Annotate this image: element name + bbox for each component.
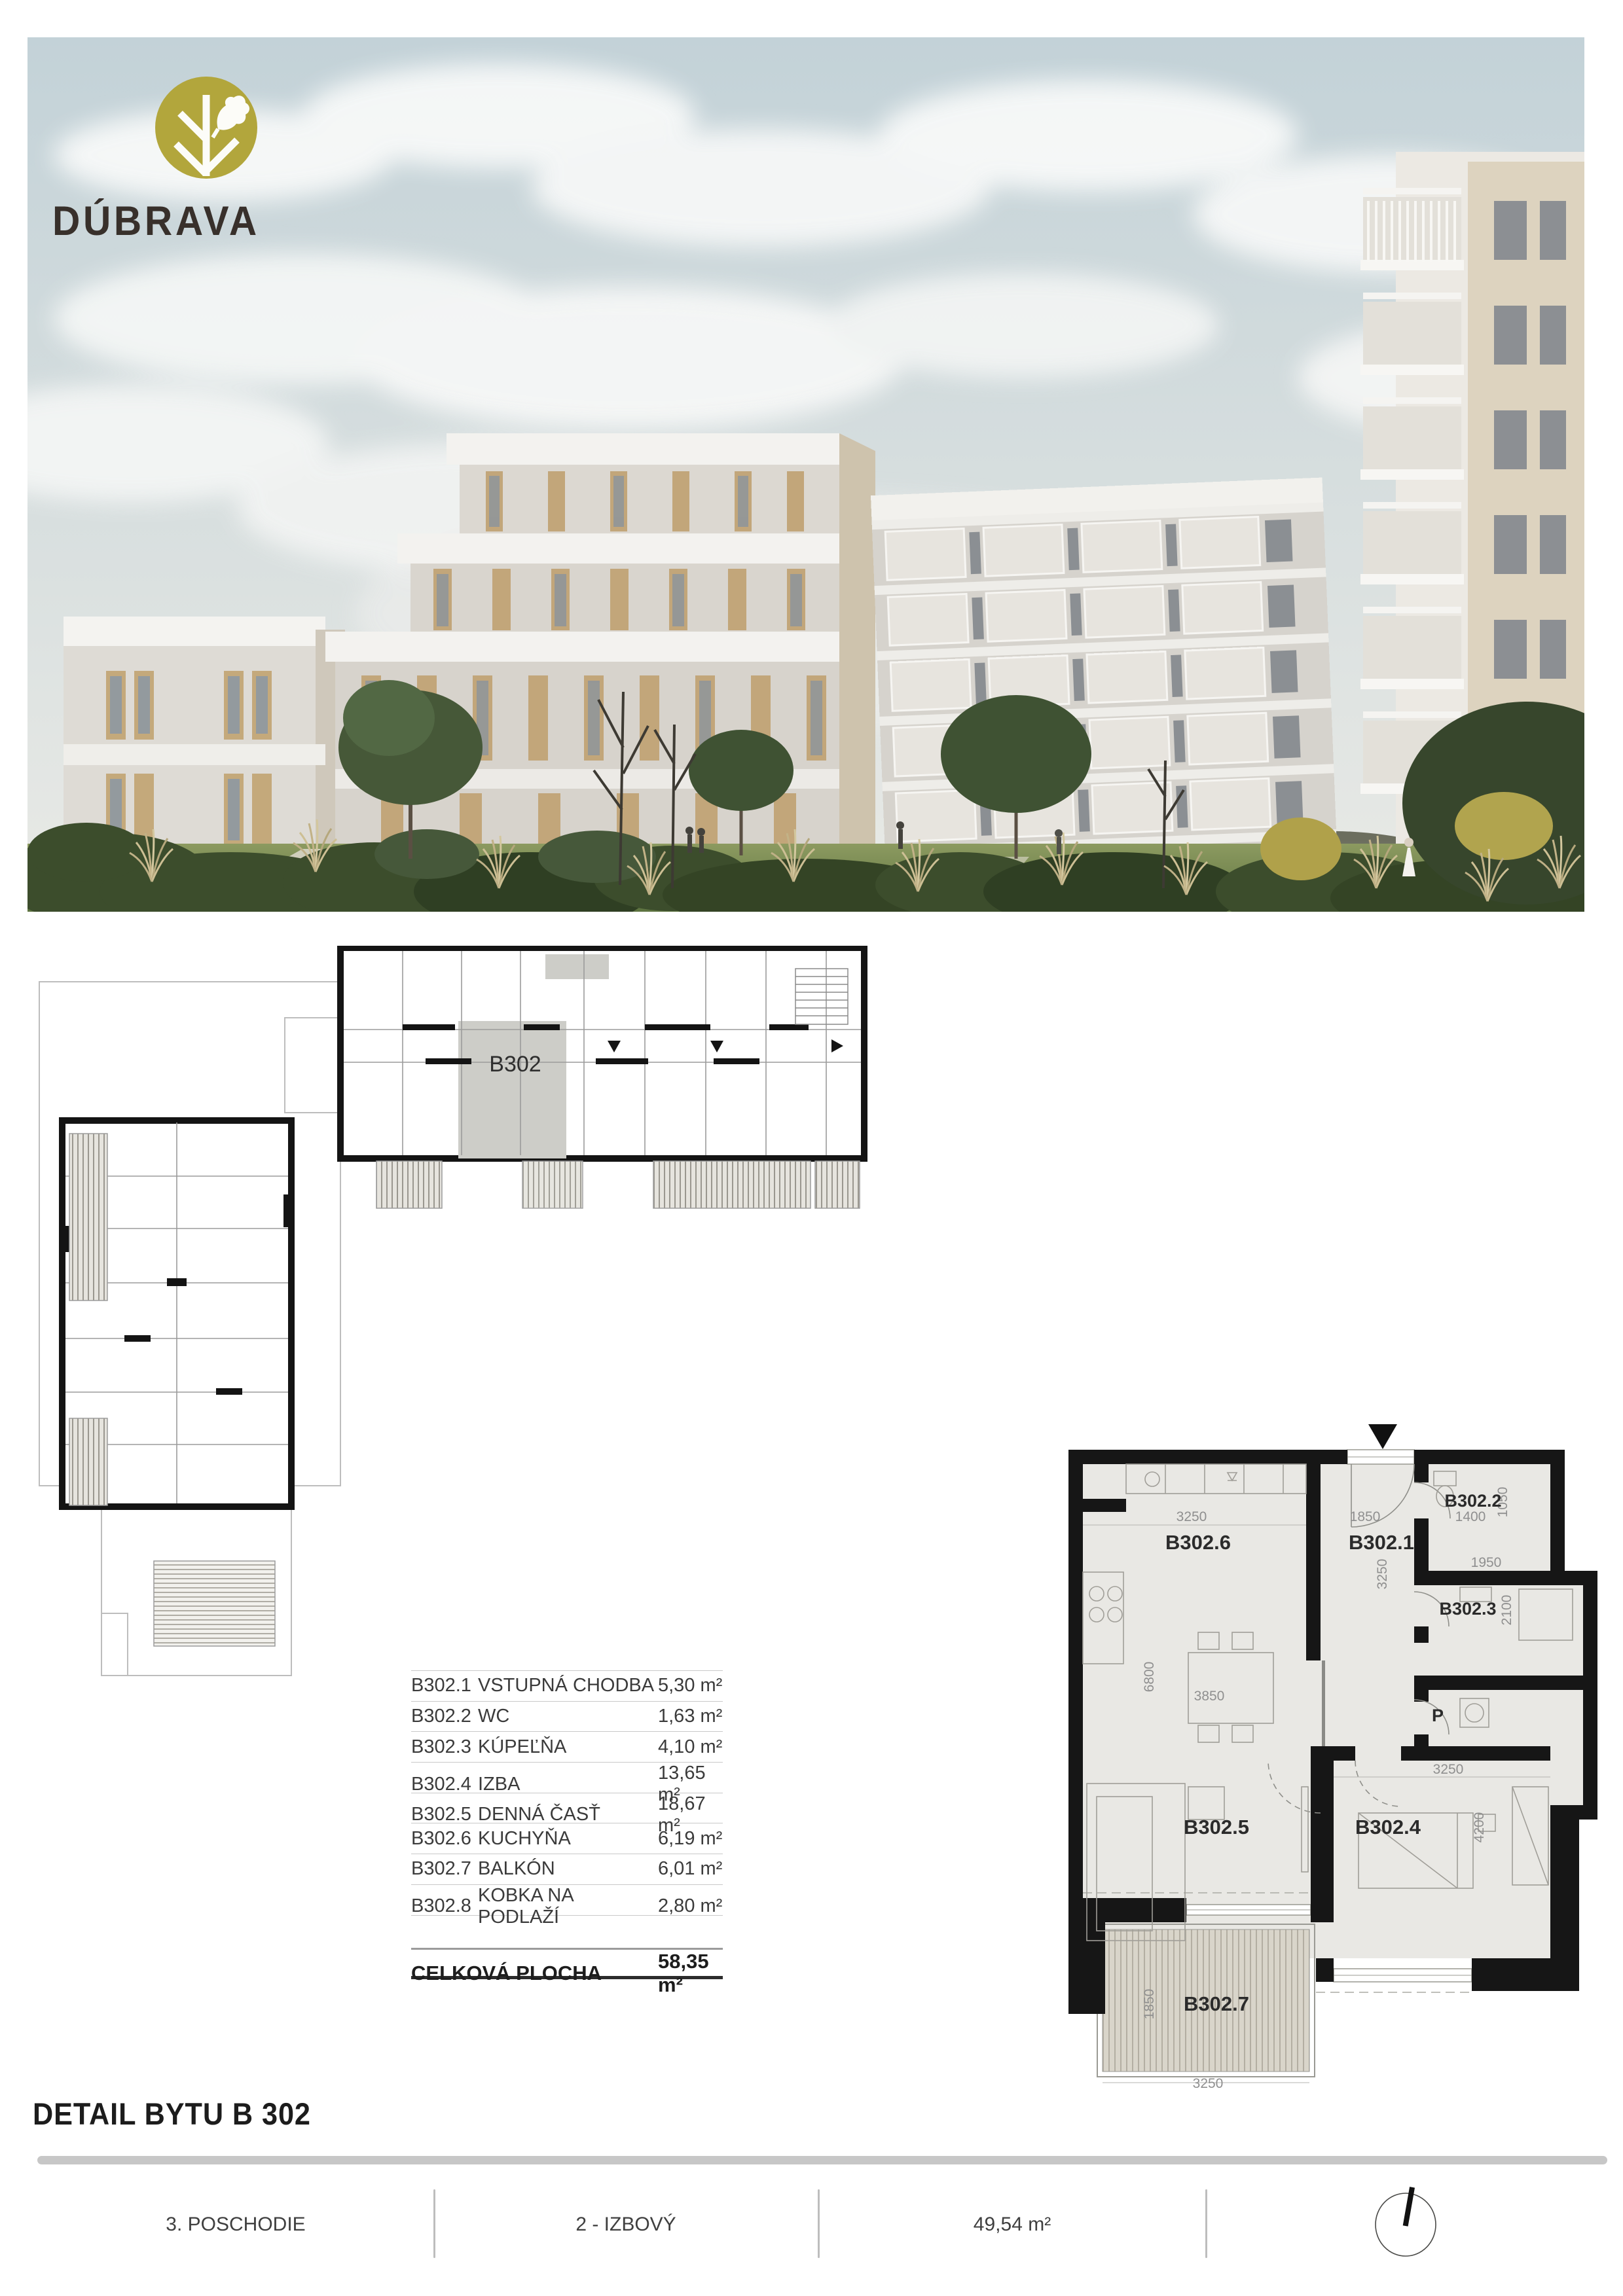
logo-badge xyxy=(155,77,257,179)
pocket-door xyxy=(1322,1660,1325,1746)
svg-text:4200: 4200 xyxy=(1472,1812,1487,1843)
brochure-page: DÚBRAVA xyxy=(0,0,1623,2296)
svg-text:P: P xyxy=(1432,1706,1444,1725)
room-name: DENNÁ ČASŤ xyxy=(478,1804,658,1825)
room-area: 5,30 m² xyxy=(658,1675,723,1696)
svg-text:2100: 2100 xyxy=(1499,1595,1514,1626)
table-row: B302.3 KÚPEĽŇA 4,10 m² xyxy=(411,1731,723,1762)
table-row: B302.1 VSTUPNÁ CHODBA 5,30 m² xyxy=(411,1670,723,1701)
footer-separator xyxy=(818,2189,820,2258)
hero-rendering xyxy=(27,37,1584,912)
room-name: KÚPEĽŇA xyxy=(478,1736,658,1758)
svg-text:B302.5: B302.5 xyxy=(1184,1816,1249,1839)
brand-wordmark: DÚBRAVA xyxy=(52,198,393,245)
room-name: IZBA xyxy=(478,1774,658,1795)
footer-separator xyxy=(1205,2189,1207,2258)
wing-building xyxy=(62,1121,291,1507)
svg-text:B302.4: B302.4 xyxy=(1355,1816,1421,1839)
table-row: B302.8 KOBKA NA PODLAŽÍ 2,80 m² xyxy=(411,1884,723,1916)
footer-area: 49,54 m² xyxy=(974,2214,1051,2236)
room-code: B302.4 xyxy=(411,1774,478,1795)
room-area: 6,19 m² xyxy=(658,1828,723,1850)
svg-text:6800: 6800 xyxy=(1142,1662,1157,1693)
svg-text:B302.3: B302.3 xyxy=(1439,1599,1496,1619)
overview-unit-label: B302 xyxy=(489,1052,541,1077)
svg-text:B302.1: B302.1 xyxy=(1349,1531,1414,1554)
room-code: B302.8 xyxy=(411,1895,478,1917)
table-row: B302.7 BALKÓN 6,01 m² xyxy=(411,1854,723,1884)
table-total-row: CELKOVÁ PLOCHA 58,35 m² xyxy=(411,1948,723,1979)
top-building: B302 xyxy=(340,948,864,1158)
room-code: B302.6 xyxy=(411,1828,478,1850)
room-area: 2,80 m² xyxy=(658,1895,723,1917)
svg-text:1850: 1850 xyxy=(1142,1989,1157,2020)
rendering-image xyxy=(27,37,1584,912)
room-name: BALKÓN xyxy=(478,1858,658,1880)
total-area: 58,35 m² xyxy=(658,1950,723,1997)
room-code: B302.3 xyxy=(411,1736,478,1758)
svg-text:3250: 3250 xyxy=(1193,2076,1224,2091)
svg-text:3250: 3250 xyxy=(1433,1762,1464,1777)
footer-divider-bar xyxy=(37,2156,1607,2164)
room-name: KUCHYŇA xyxy=(478,1828,658,1850)
svg-text:B302.7: B302.7 xyxy=(1184,1992,1249,2015)
detail-floorplan-b302: 3250 1850 1400 1050 1950 3250 2100 6800 … xyxy=(1067,1420,1611,2094)
room-code: B302.2 xyxy=(411,1706,478,1727)
room-name: WC xyxy=(478,1706,658,1727)
room-code: B302.1 xyxy=(411,1675,478,1696)
page-title: DETAIL BYTU B 302 xyxy=(33,2096,335,2132)
total-label: CELKOVÁ PLOCHA xyxy=(411,1962,658,1985)
svg-text:B302.6: B302.6 xyxy=(1165,1531,1231,1554)
room-area-table: B302.1 VSTUPNÁ CHODBA 5,30 m² B302.2 WC … xyxy=(411,1670,723,1979)
entrance-arrow-icon xyxy=(1368,1424,1397,1449)
svg-text:3250: 3250 xyxy=(1375,1559,1390,1590)
room-name: VSTUPNÁ CHODBA xyxy=(478,1675,658,1696)
north-arrow-compass-icon xyxy=(1372,2184,1444,2266)
room-code: B302.5 xyxy=(411,1804,478,1825)
table-row: B302.4 IZBA 13,65 m² xyxy=(411,1762,723,1793)
top-building-balconies xyxy=(376,1161,860,1208)
svg-text:B302.2: B302.2 xyxy=(1444,1491,1501,1511)
svg-text:1400: 1400 xyxy=(1455,1509,1486,1524)
unit-b302-highlight xyxy=(458,1021,566,1158)
room-name: KOBKA NA PODLAŽÍ xyxy=(478,1885,658,1928)
table-row: B302.6 KUCHYŇA 6,19 m² xyxy=(411,1823,723,1854)
overview-floorplan: B302 xyxy=(20,946,877,1685)
svg-text:3850: 3850 xyxy=(1194,1689,1225,1704)
footer-separator xyxy=(433,2189,435,2258)
table-row: B302.5 DENNÁ ČASŤ 18,67 m² xyxy=(411,1793,723,1823)
footer-layout-type: 2 - IZBOVÝ xyxy=(575,2214,676,2236)
svg-text:1850: 1850 xyxy=(1350,1509,1381,1524)
room-area: 6,01 m² xyxy=(658,1858,723,1880)
table-row: B302.2 WC 1,63 m² xyxy=(411,1701,723,1732)
room-area: 4,10 m² xyxy=(658,1736,723,1758)
svg-text:3250: 3250 xyxy=(1176,1509,1207,1524)
terrace-hatched xyxy=(154,1561,275,1646)
svg-text:1950: 1950 xyxy=(1471,1555,1502,1570)
oak-tree-icon xyxy=(155,77,257,179)
footer-floor: 3. POSCHODIE xyxy=(166,2214,305,2236)
room-area: 1,63 m² xyxy=(658,1706,723,1727)
room-code: B302.7 xyxy=(411,1858,478,1880)
